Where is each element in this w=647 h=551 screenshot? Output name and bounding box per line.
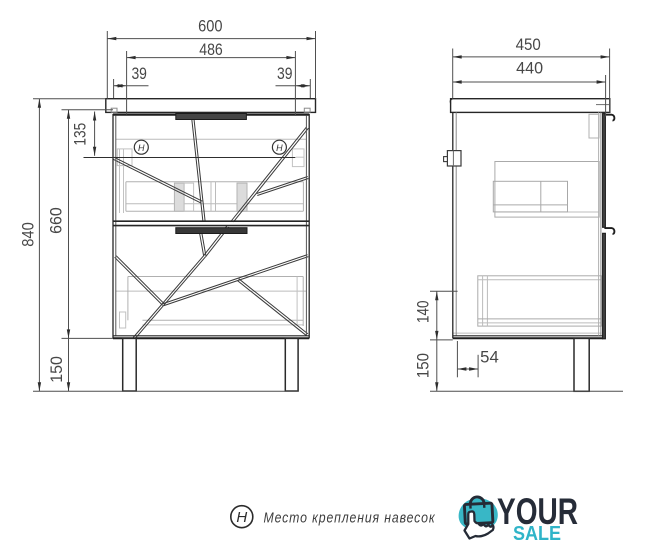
svg-text:39: 39 [131, 65, 147, 83]
svg-text:39: 39 [277, 65, 293, 83]
svg-text:140: 140 [415, 301, 433, 323]
svg-text:150: 150 [48, 356, 66, 383]
svg-text:840: 840 [20, 222, 38, 247]
svg-text:486: 486 [199, 41, 223, 59]
svg-text:Место крепления навесок: Место крепления навесок [264, 511, 436, 527]
svg-text:54: 54 [480, 349, 499, 367]
svg-text:H: H [276, 143, 283, 153]
svg-text:660: 660 [48, 207, 66, 234]
svg-text:SALE: SALE [513, 522, 561, 545]
svg-text:440: 440 [516, 60, 543, 78]
svg-text:150: 150 [415, 353, 433, 378]
svg-text:H: H [138, 143, 145, 153]
svg-text:450: 450 [516, 36, 541, 54]
svg-text:H: H [236, 509, 247, 526]
svg-text:135: 135 [72, 123, 90, 146]
svg-text:600: 600 [198, 17, 222, 35]
